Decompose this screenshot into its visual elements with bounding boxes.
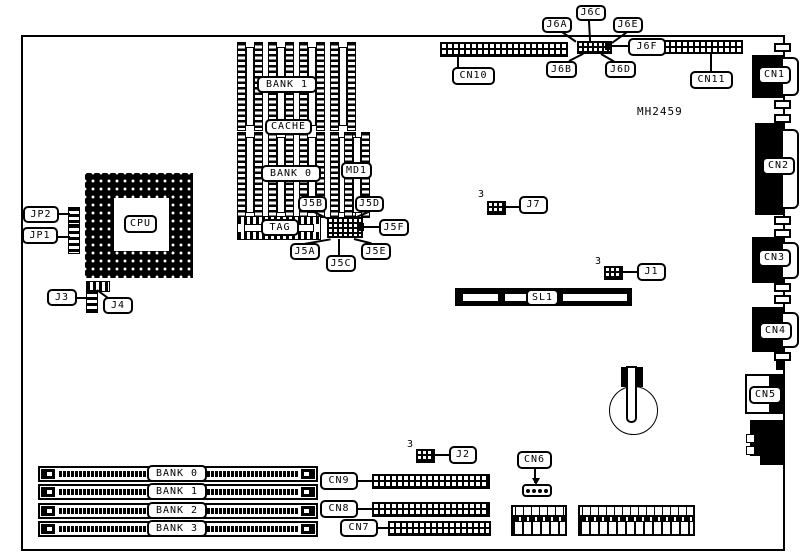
bracket-tab bbox=[774, 295, 791, 304]
label-cn1: CN1 bbox=[758, 66, 791, 84]
pin1-marker-j2: 3 bbox=[407, 440, 413, 450]
jumper-jp1 bbox=[68, 224, 80, 254]
label-j6a: J6A bbox=[542, 17, 572, 33]
connector-cn9 bbox=[372, 474, 490, 489]
label-cn6: CN6 bbox=[517, 451, 552, 469]
leader-nub bbox=[357, 223, 364, 231]
connector-cn10 bbox=[440, 42, 568, 57]
bracket-tab bbox=[774, 229, 791, 238]
leader-line bbox=[58, 213, 70, 215]
connector-cn8 bbox=[372, 502, 490, 517]
pin1-marker-j7: 3 bbox=[478, 190, 484, 200]
connector-cn11 bbox=[663, 40, 743, 54]
label-cpu: CPU bbox=[124, 215, 157, 233]
bracket-tab bbox=[774, 114, 791, 123]
power-connector-1 bbox=[511, 505, 567, 536]
leader-line bbox=[622, 271, 637, 273]
leader-line bbox=[378, 527, 388, 529]
label-jp1: JP1 bbox=[22, 227, 58, 244]
label-cn4: CN4 bbox=[759, 322, 792, 340]
label-j7: J7 bbox=[519, 196, 548, 214]
label-j6b: J6B bbox=[546, 61, 577, 78]
jumper-j2 bbox=[416, 449, 435, 463]
chip bbox=[330, 42, 356, 131]
label-simm-bank0: BANK 0 bbox=[147, 465, 207, 482]
label-jp2: JP2 bbox=[23, 206, 59, 223]
label-j1: J1 bbox=[637, 263, 666, 281]
label-j5e: J5E bbox=[361, 243, 391, 260]
bracket-tab bbox=[774, 100, 791, 109]
part-number: MH2459 bbox=[637, 106, 683, 117]
leader-line bbox=[57, 236, 70, 238]
din-notch bbox=[746, 446, 755, 455]
label-j2: J2 bbox=[449, 446, 477, 464]
label-cache-bank1: BANK 1 bbox=[257, 76, 317, 93]
power-connector-2 bbox=[578, 505, 695, 536]
leader-line bbox=[435, 454, 449, 456]
connector-cn6 bbox=[522, 484, 552, 497]
jumper-j1 bbox=[604, 266, 623, 280]
din-step bbox=[750, 456, 760, 465]
jumper-j7 bbox=[487, 201, 506, 215]
label-simm-bank3: BANK 3 bbox=[147, 520, 207, 537]
din-notch bbox=[746, 434, 755, 443]
label-cn5: CN5 bbox=[749, 386, 782, 404]
jumper-j3 bbox=[86, 290, 98, 313]
motherboard-diagram: CPU JP2 JP1 J3 J4 BANK 1 CACHE BANK 0 MD… bbox=[0, 0, 807, 558]
label-cn11: CN11 bbox=[690, 71, 733, 89]
label-cn9: CN9 bbox=[320, 472, 358, 490]
label-sl1: SL1 bbox=[526, 289, 559, 306]
label-j5f: J5F bbox=[379, 219, 409, 236]
leader-line bbox=[358, 480, 372, 482]
label-simm-bank2: BANK 2 bbox=[147, 502, 207, 519]
label-j6c: J6C bbox=[576, 5, 606, 21]
leader-line bbox=[505, 206, 519, 208]
label-cn7: CN7 bbox=[340, 519, 378, 537]
label-cache: CACHE bbox=[265, 119, 312, 135]
battery-retainer bbox=[626, 366, 637, 423]
bracket-tab bbox=[774, 216, 791, 225]
label-j5a: J5A bbox=[290, 243, 320, 260]
label-j6e: J6E bbox=[613, 17, 643, 33]
leader-line bbox=[358, 508, 372, 510]
label-cache-bank0: BANK 0 bbox=[261, 165, 321, 182]
label-j5c: J5C bbox=[326, 255, 356, 272]
label-cn8: CN8 bbox=[320, 500, 358, 518]
leader-line bbox=[76, 297, 88, 299]
connector-cn7 bbox=[388, 521, 491, 536]
leader-nub bbox=[605, 43, 612, 50]
label-md1: MD1 bbox=[341, 162, 372, 179]
chip bbox=[237, 132, 263, 218]
bracket-tab bbox=[774, 43, 791, 52]
label-j5b: J5B bbox=[298, 196, 327, 212]
bracket-tab bbox=[774, 352, 791, 361]
label-cn3: CN3 bbox=[758, 249, 791, 267]
pin1-marker-j1: 3 bbox=[595, 257, 601, 267]
label-j3: J3 bbox=[47, 289, 77, 306]
leader-line bbox=[338, 239, 340, 256]
leader-line bbox=[588, 21, 591, 43]
label-j5d: J5D bbox=[355, 196, 384, 212]
label-j4: J4 bbox=[103, 297, 133, 314]
label-cn2: CN2 bbox=[762, 157, 795, 175]
label-simm-bank1: BANK 1 bbox=[147, 483, 207, 500]
leader-line bbox=[363, 226, 379, 228]
bracket-tab bbox=[774, 283, 791, 292]
label-j6d: J6D bbox=[605, 61, 636, 78]
leader-line bbox=[611, 45, 628, 47]
label-j6f: J6F bbox=[628, 38, 666, 56]
label-cn10: CN10 bbox=[452, 67, 495, 85]
leader-arrow bbox=[532, 478, 540, 485]
label-tag: TAG bbox=[261, 219, 299, 236]
